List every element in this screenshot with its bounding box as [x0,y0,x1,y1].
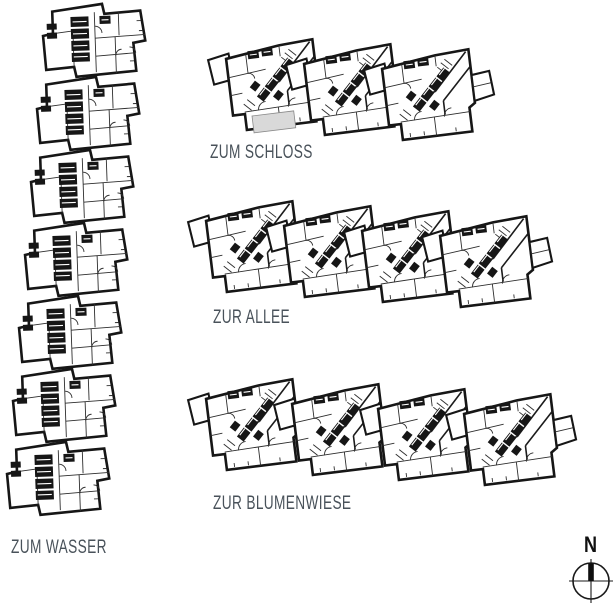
building-unit [24,221,128,297]
building-unit [36,75,140,151]
site-plan-drawing [0,0,616,607]
building-row-zur-blumenwiese [187,379,576,488]
building-unit [18,294,122,370]
label-zur-blumenwiese: ZUR BLUMENWIESE [213,494,351,515]
label-zur-allee: ZUR ALLEE [213,308,290,329]
building-end-cap [471,71,494,101]
building-unit [30,148,134,224]
label-zum-schloss: ZUM SCHLOSS [210,143,313,164]
building-row-zur-allee [187,201,552,310]
north-arrow-icon [569,559,613,603]
building-end-cap [529,238,552,268]
building-end-cap [553,416,576,446]
label-north: N [584,532,597,558]
building-unit [6,440,110,516]
building-unit [12,367,116,443]
building-unit [42,2,146,78]
site-plan-canvas: ZUM SCHLOSS ZUR ALLEE ZUR BLUMENWIESE ZU… [0,0,616,607]
building-zum-wasser [6,2,146,516]
building-row-zum-schloss [207,39,494,143]
label-zum-wasser: ZUM WASSER [11,538,107,559]
